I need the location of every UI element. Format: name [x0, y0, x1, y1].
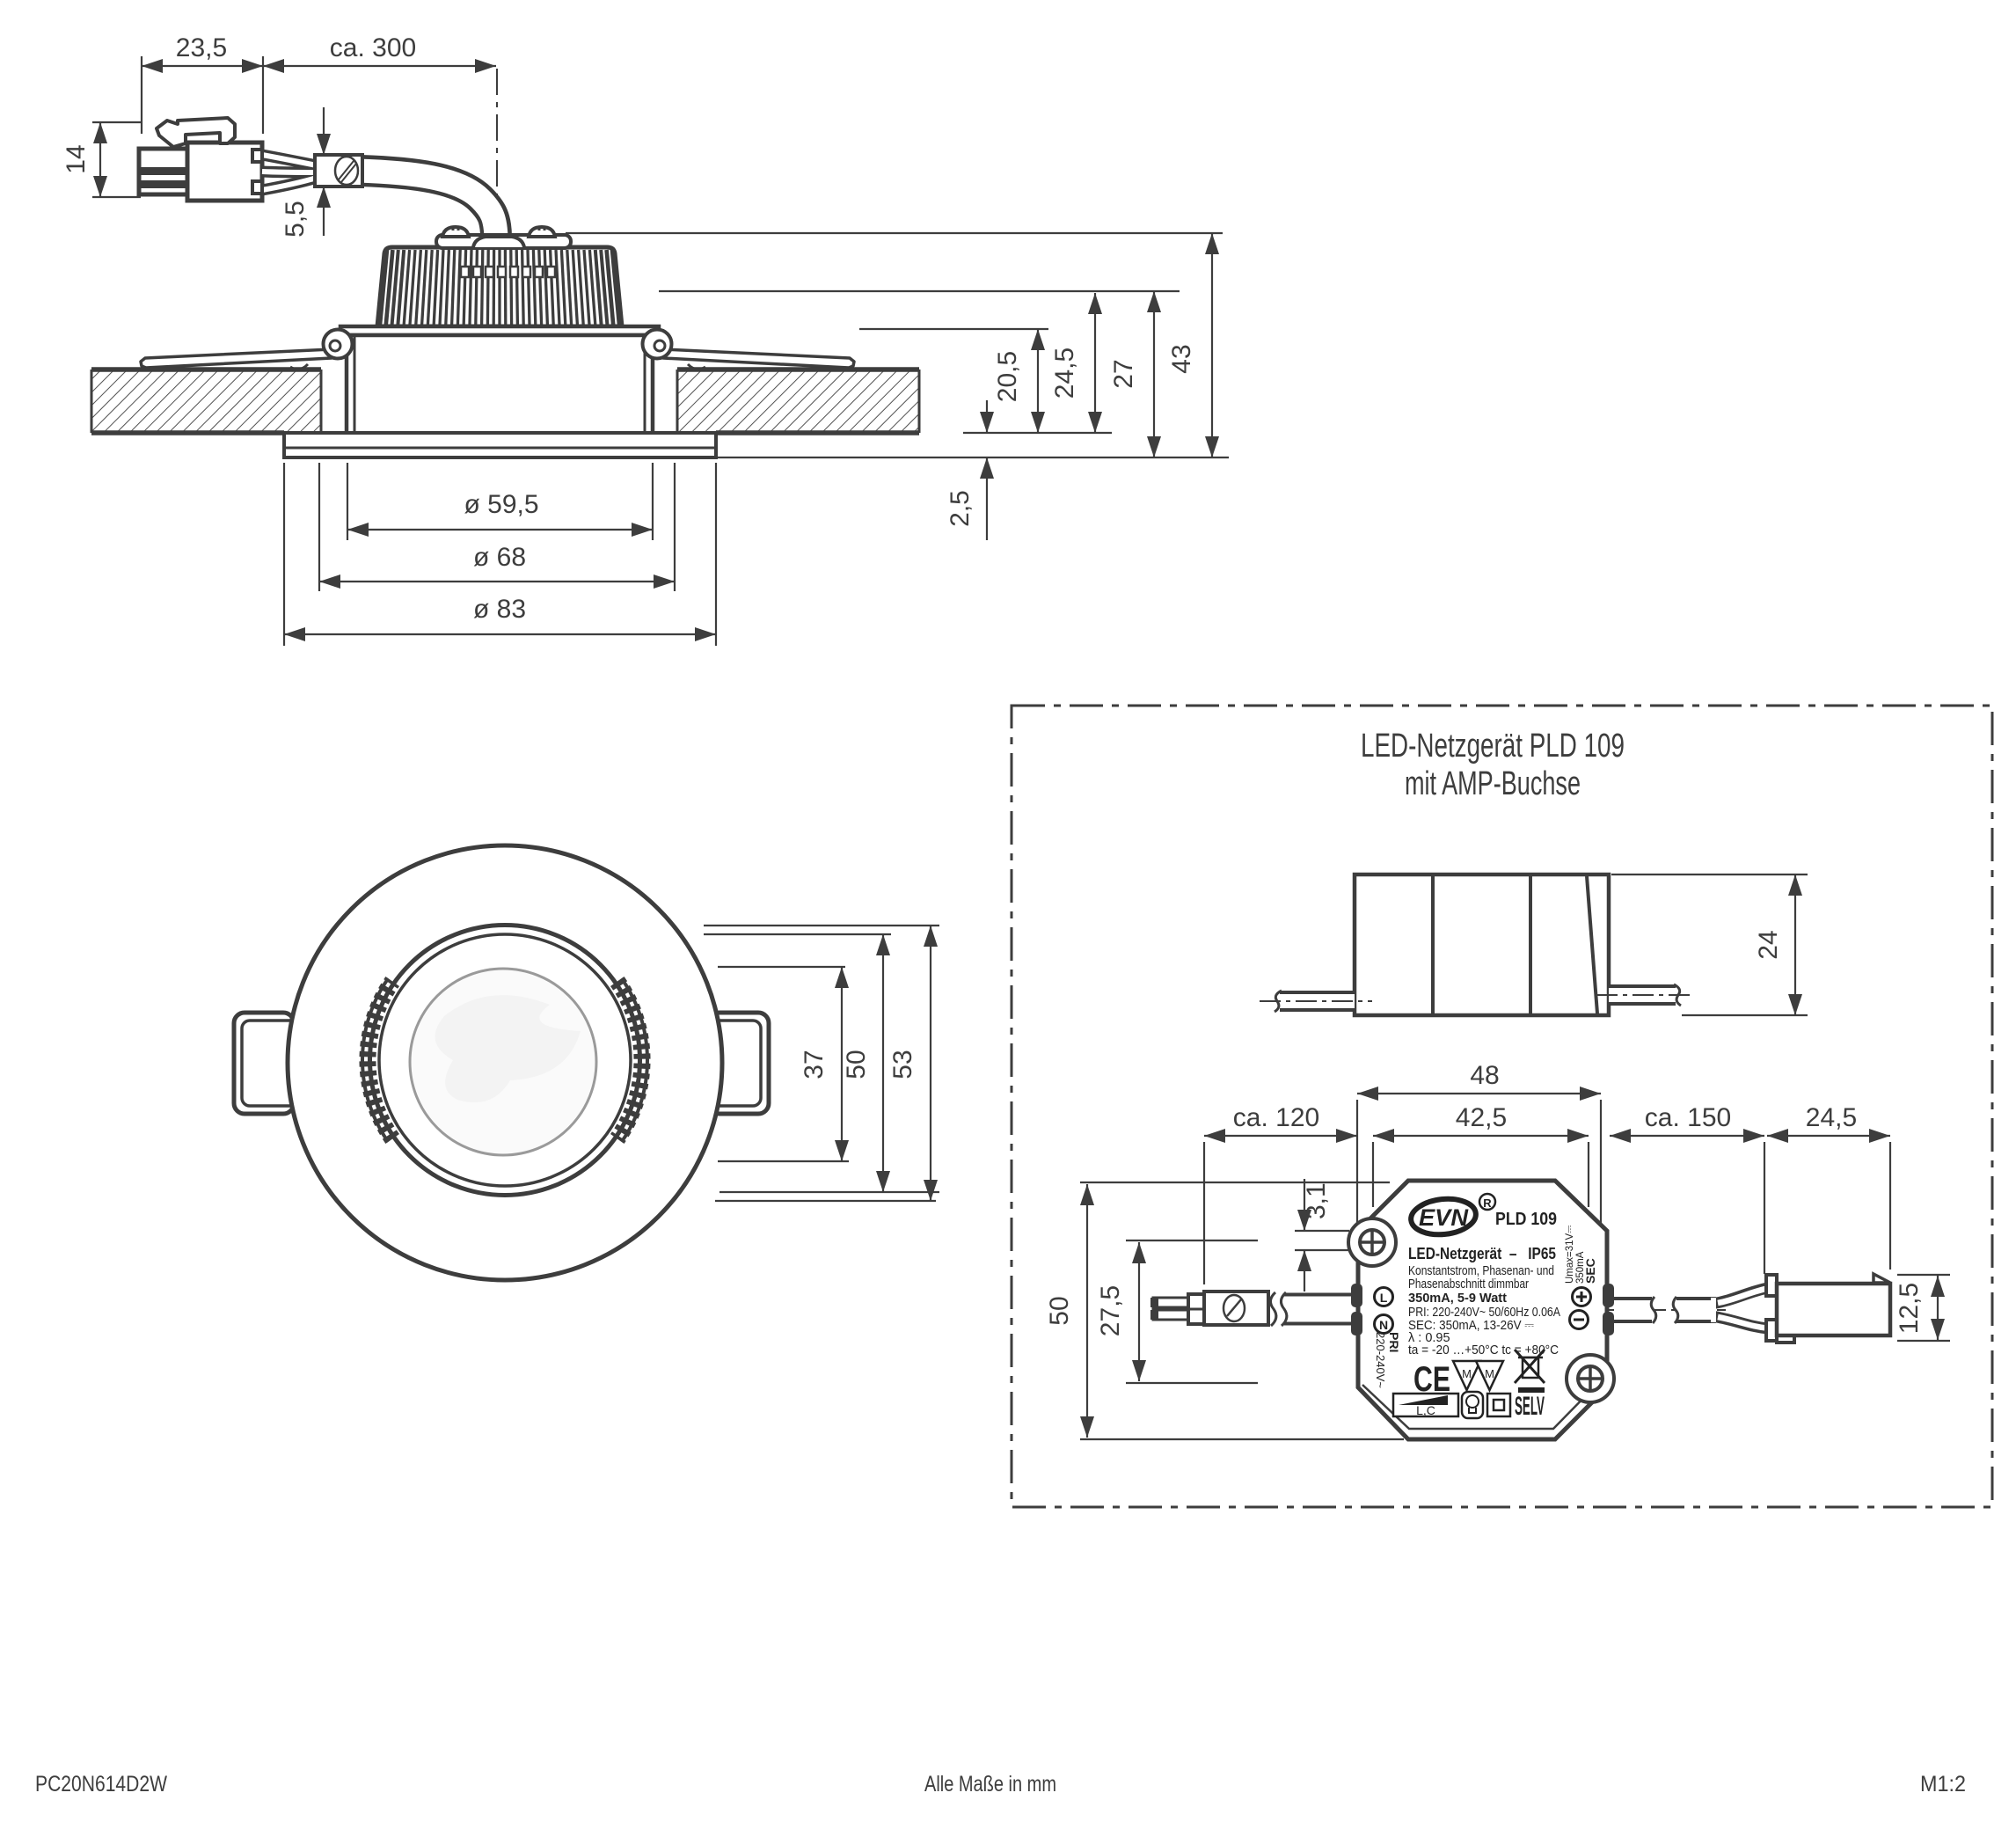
svg-text:42,5: 42,5: [1456, 1103, 1507, 1132]
svg-text:350mA, 5-9 Watt: 350mA, 5-9 Watt: [1408, 1291, 1507, 1306]
svg-text:PRI: 220-240V~ 50/60Hz 0.06A: PRI: 220-240V~ 50/60Hz 0.06A: [1408, 1306, 1560, 1320]
svg-text:ø 68: ø 68: [473, 543, 526, 572]
svg-text:M: M: [1485, 1367, 1494, 1380]
svg-text:ø 83: ø 83: [473, 595, 526, 624]
svg-text:LED-Netzgerät PLD 109: LED-Netzgerät PLD 109: [1361, 728, 1625, 765]
svg-text:SELV: SELV: [1515, 1392, 1545, 1421]
svg-text:R: R: [1483, 1196, 1492, 1210]
svg-text:M1:2: M1:2: [1920, 1772, 1966, 1796]
svg-text:50: 50: [1045, 1296, 1074, 1325]
svg-text:12,5: 12,5: [1895, 1283, 1924, 1334]
svg-text:L,C: L,C: [1416, 1403, 1435, 1417]
svg-text:350mA: 350mA: [1575, 1251, 1586, 1284]
svg-text:N: N: [1379, 1318, 1388, 1332]
svg-text:24,5: 24,5: [1806, 1103, 1857, 1132]
svg-text:14: 14: [62, 144, 91, 173]
svg-text:Alle Maße in mm: Alle Maße in mm: [924, 1772, 1056, 1796]
svg-text:ca. 300: ca. 300: [330, 33, 416, 62]
svg-text:PRI: PRI: [1387, 1332, 1401, 1352]
svg-text:L: L: [1380, 1291, 1388, 1305]
svg-text:20,5: 20,5: [993, 351, 1022, 402]
svg-text:Phasenabschnitt dimmbar: Phasenabschnitt dimmbar: [1408, 1277, 1529, 1291]
svg-text:ca. 120: ca. 120: [1233, 1103, 1319, 1132]
svg-text:M: M: [1462, 1367, 1472, 1380]
svg-text:EVN: EVN: [1419, 1204, 1468, 1231]
svg-text:Umax=31V⎓: Umax=31V⎓: [1565, 1225, 1575, 1284]
svg-text:23,5: 23,5: [176, 33, 227, 62]
svg-text:50: 50: [842, 1050, 871, 1079]
svg-text:mit AMP-Buchse: mit AMP-Buchse: [1405, 765, 1581, 802]
svg-text:PLD 109: PLD 109: [1495, 1210, 1557, 1229]
svg-text:3,1: 3,1: [1302, 1182, 1331, 1219]
svg-text:2,5: 2,5: [946, 490, 975, 527]
svg-text:220-240V~: 220-240V~: [1374, 1332, 1387, 1388]
svg-text:48: 48: [1470, 1061, 1499, 1090]
svg-text:ta = -20 …+50°C tc = +80°C: ta = -20 …+50°C tc = +80°C: [1408, 1343, 1559, 1357]
svg-text:43: 43: [1167, 344, 1196, 373]
svg-text:24: 24: [1754, 930, 1783, 959]
svg-text:27: 27: [1109, 359, 1138, 388]
svg-text:ca. 150: ca. 150: [1645, 1103, 1731, 1132]
svg-text:ø 59,5: ø 59,5: [464, 490, 538, 519]
svg-text:24,5: 24,5: [1050, 348, 1079, 399]
svg-text:Konstantstrom, Phasenan- und: Konstantstrom, Phasenan- und: [1408, 1264, 1554, 1278]
svg-text:LED-Netzgerät – IP65: LED-Netzgerät – IP65: [1408, 1245, 1556, 1262]
svg-text:53: 53: [888, 1050, 917, 1079]
svg-text:PC20N614D2W: PC20N614D2W: [35, 1772, 167, 1796]
svg-text:5,5: 5,5: [281, 201, 310, 238]
svg-text:37: 37: [800, 1050, 829, 1079]
svg-text:27,5: 27,5: [1096, 1285, 1125, 1336]
